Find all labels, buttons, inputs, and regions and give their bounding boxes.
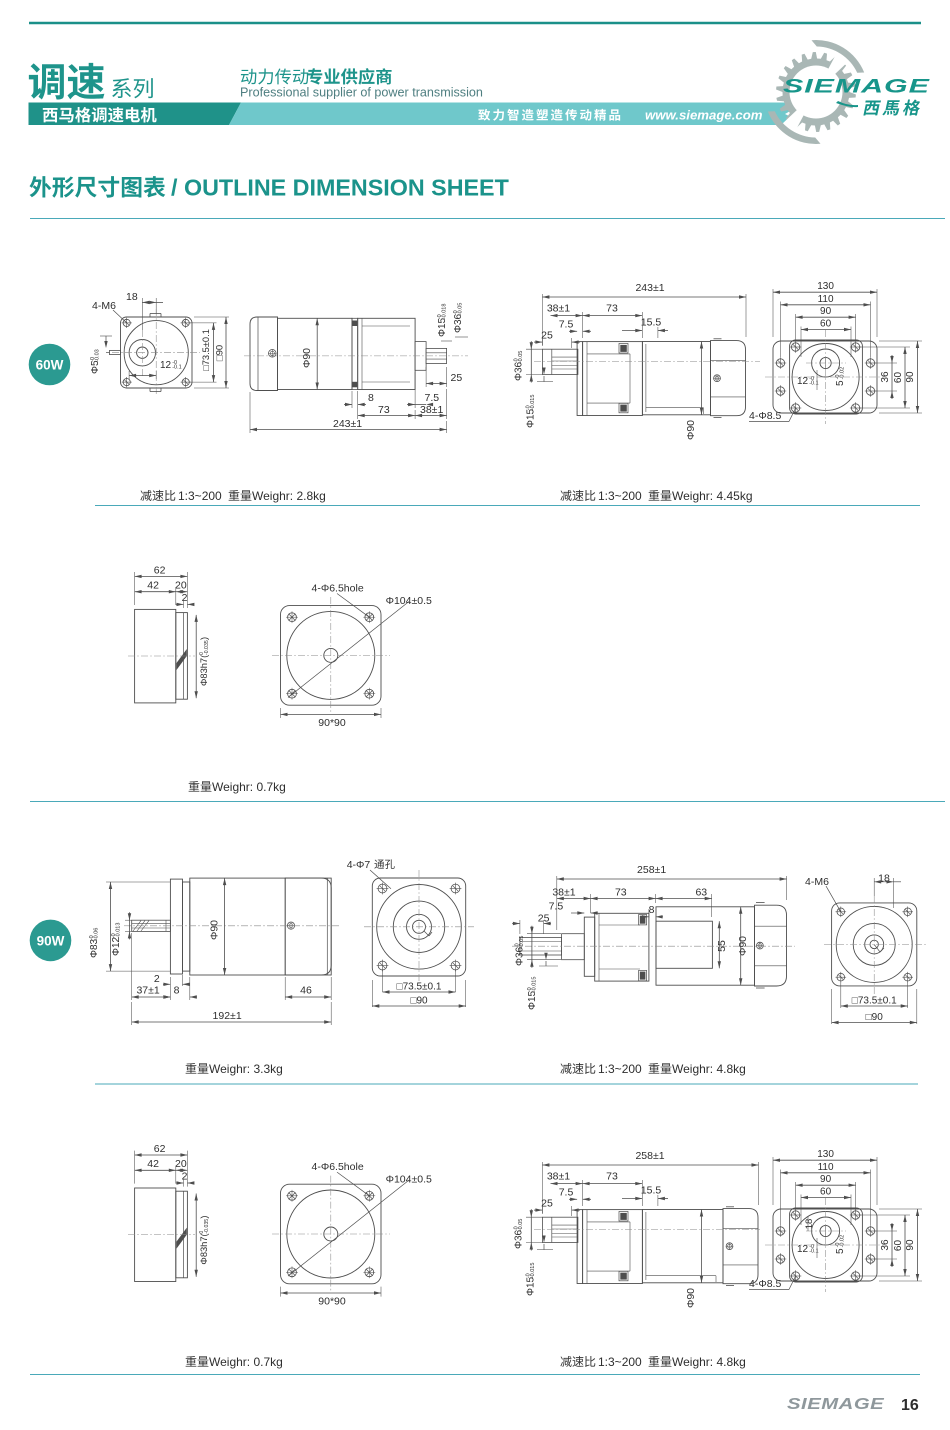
- svg-text:37±1: 37±1: [136, 985, 159, 997]
- svg-text:): ): [199, 1215, 209, 1218]
- svg-text:Φ36: Φ36: [514, 1229, 525, 1249]
- svg-text:73: 73: [606, 303, 618, 315]
- svg-text:2: 2: [182, 592, 188, 604]
- svg-text:90: 90: [905, 1239, 916, 1251]
- svg-text:Φ15: Φ15: [527, 990, 538, 1010]
- svg-text:20: 20: [175, 580, 187, 592]
- svg-text:-0.015: -0.015: [530, 395, 536, 411]
- svg-text:Φ90: Φ90: [737, 936, 749, 956]
- svg-text:60: 60: [820, 319, 832, 330]
- svg-text:Φ12: Φ12: [111, 936, 122, 956]
- svg-text:73: 73: [606, 1171, 618, 1183]
- svg-text:□73.5±0.1: □73.5±0.1: [201, 329, 211, 371]
- svg-text:15.5: 15.5: [641, 1185, 662, 1197]
- svg-text:46: 46: [300, 985, 312, 997]
- svg-text:12: 12: [797, 376, 809, 387]
- svg-text:Φ90: Φ90: [301, 348, 313, 368]
- svg-text:Φ15: Φ15: [437, 317, 448, 337]
- svg-text:4-M6: 4-M6: [92, 300, 116, 312]
- svg-text:25: 25: [541, 330, 553, 342]
- svg-text:243±1: 243±1: [333, 418, 362, 430]
- svg-text:Weighr: 3.3kg: Weighr: 3.3kg: [209, 1062, 283, 1076]
- svg-text:7.5: 7.5: [549, 901, 564, 913]
- svg-text:□90: □90: [866, 1012, 884, 1023]
- svg-text:243±1: 243±1: [635, 282, 664, 294]
- svg-text:2: 2: [182, 1171, 188, 1183]
- svg-text:16: 16: [901, 1397, 919, 1414]
- svg-text:1:3~200: 1:3~200: [598, 489, 642, 503]
- svg-text:36: 36: [880, 1239, 891, 1251]
- svg-text:Professional supplier of power: Professional supplier of power transmiss…: [240, 86, 483, 100]
- svg-text:25: 25: [451, 372, 463, 384]
- svg-text:Weighr: 4.45kg: Weighr: 4.45kg: [672, 489, 753, 503]
- svg-text:-0.03: -0.03: [95, 349, 101, 362]
- svg-text:□73.5±0.1: □73.5±0.1: [852, 995, 897, 1006]
- svg-text:55: 55: [716, 940, 728, 952]
- svg-text:8: 8: [174, 985, 180, 997]
- svg-text:5: 5: [835, 1248, 846, 1254]
- svg-text:1:3~200: 1:3~200: [598, 1062, 642, 1076]
- svg-text:Φ90: Φ90: [685, 1288, 697, 1308]
- svg-text:25: 25: [541, 1198, 553, 1210]
- svg-text:Φ15: Φ15: [526, 408, 537, 428]
- svg-text:38±1: 38±1: [547, 303, 570, 315]
- svg-text:110: 110: [818, 294, 834, 305]
- svg-text:8: 8: [649, 904, 655, 916]
- svg-text:-0.06: -0.06: [94, 928, 100, 941]
- svg-text:-0.035: -0.035: [204, 640, 210, 655]
- svg-text:Φ90: Φ90: [208, 920, 220, 940]
- svg-text:Weighr: 4.8kg: Weighr: 4.8kg: [672, 1062, 746, 1076]
- svg-text:38±1: 38±1: [552, 887, 575, 899]
- svg-text:60W: 60W: [36, 358, 64, 373]
- svg-text:90: 90: [905, 371, 916, 383]
- svg-text:90*90: 90*90: [318, 1296, 346, 1308]
- svg-text:7.5: 7.5: [559, 1187, 574, 1199]
- svg-text:-0.018: -0.018: [442, 304, 448, 320]
- svg-text:90: 90: [820, 306, 832, 317]
- svg-text:Φ83: Φ83: [89, 938, 100, 958]
- svg-text:258±1: 258±1: [637, 864, 666, 876]
- svg-text:18: 18: [126, 291, 138, 303]
- svg-text:SIEMAGE: SIEMAGE: [787, 1394, 885, 1412]
- svg-text:Φ90: Φ90: [685, 420, 697, 440]
- svg-text:-0.02: -0.02: [840, 1235, 846, 1248]
- svg-text:Φ36: Φ36: [514, 361, 525, 381]
- svg-text:Φ15: Φ15: [526, 1276, 537, 1296]
- svg-text:60: 60: [893, 1240, 904, 1252]
- svg-text:38±1: 38±1: [547, 1171, 570, 1183]
- svg-text:1:3~200: 1:3~200: [598, 1355, 642, 1369]
- svg-text:130: 130: [817, 1149, 834, 1160]
- svg-text:2: 2: [154, 973, 160, 985]
- svg-text:Φ83h7(: Φ83h7(: [199, 1233, 209, 1265]
- svg-text:-0.1: -0.1: [172, 365, 181, 371]
- svg-text:62: 62: [154, 565, 166, 577]
- svg-text:110: 110: [818, 1162, 834, 1173]
- svg-text:Φ104±0.5: Φ104±0.5: [386, 1174, 432, 1186]
- svg-text:□90: □90: [410, 995, 428, 1006]
- svg-text:15.5: 15.5: [641, 317, 662, 329]
- svg-text:-0.05: -0.05: [458, 303, 464, 316]
- svg-text:4-Φ6.5hole: 4-Φ6.5hole: [312, 1161, 364, 1173]
- svg-text:-0.015: -0.015: [532, 977, 538, 993]
- svg-text:73: 73: [378, 404, 390, 416]
- svg-text:42: 42: [147, 580, 159, 592]
- svg-text:-0.013: -0.013: [116, 923, 122, 939]
- svg-text:): ): [199, 637, 209, 640]
- svg-text:Φ36: Φ36: [453, 313, 464, 333]
- svg-text:62: 62: [154, 1143, 166, 1155]
- svg-text:Weighr: 4.8kg: Weighr: 4.8kg: [672, 1355, 746, 1369]
- svg-text:SIEMAGE: SIEMAGE: [783, 76, 930, 97]
- svg-text:130: 130: [817, 281, 834, 292]
- svg-text:90*90: 90*90: [318, 717, 346, 729]
- svg-text:-0.05: -0.05: [519, 936, 525, 949]
- svg-text:□73.5±0.1: □73.5±0.1: [397, 981, 442, 992]
- svg-text:-0.035: -0.035: [204, 1219, 210, 1234]
- svg-text:Weighr: 0.7kg: Weighr: 0.7kg: [209, 1355, 283, 1369]
- svg-text:18: 18: [804, 1219, 815, 1230]
- svg-text:12: 12: [160, 360, 172, 371]
- svg-text:192±1: 192±1: [213, 1010, 242, 1022]
- svg-text:60: 60: [820, 1187, 832, 1198]
- svg-text:4-M6: 4-M6: [805, 876, 829, 888]
- svg-text:20: 20: [175, 1158, 187, 1170]
- svg-text:7.5: 7.5: [559, 319, 574, 331]
- svg-text:□90: □90: [215, 345, 226, 361]
- svg-text:60: 60: [893, 372, 904, 384]
- svg-text:Φ104±0.5: Φ104±0.5: [386, 595, 432, 607]
- svg-text:Weighr: 0.7kg: Weighr: 0.7kg: [212, 780, 286, 794]
- svg-text:73: 73: [615, 887, 627, 899]
- svg-text:Φ83h7(: Φ83h7(: [199, 654, 209, 686]
- svg-text:4-Φ6.5hole: 4-Φ6.5hole: [312, 583, 364, 595]
- svg-text:Weighr: 2.8kg: Weighr: 2.8kg: [252, 489, 326, 503]
- svg-text:258±1: 258±1: [635, 1150, 664, 1162]
- svg-text:90: 90: [820, 1174, 832, 1185]
- svg-text:Φ36: Φ36: [515, 946, 526, 966]
- svg-text:5: 5: [835, 380, 846, 386]
- svg-text:7.5: 7.5: [425, 392, 440, 404]
- svg-text:-0.02: -0.02: [840, 367, 846, 380]
- svg-text:1:3~200: 1:3~200: [178, 489, 222, 503]
- svg-text:63: 63: [695, 887, 707, 899]
- svg-text:12: 12: [797, 1244, 809, 1255]
- svg-text:36: 36: [880, 371, 891, 383]
- svg-text:-0.05: -0.05: [518, 351, 524, 364]
- svg-text:4-Φ7: 4-Φ7: [347, 859, 371, 871]
- svg-text:90W: 90W: [37, 933, 65, 948]
- svg-text:www.siemage.com: www.siemage.com: [645, 108, 763, 123]
- svg-text:-0.015: -0.015: [530, 1263, 536, 1279]
- svg-text:/ OUTLINE DIMENSION SHEET: / OUTLINE DIMENSION SHEET: [171, 175, 509, 201]
- svg-text:8: 8: [368, 392, 374, 404]
- svg-text:-0.05: -0.05: [518, 1219, 524, 1232]
- svg-text:42: 42: [147, 1158, 159, 1170]
